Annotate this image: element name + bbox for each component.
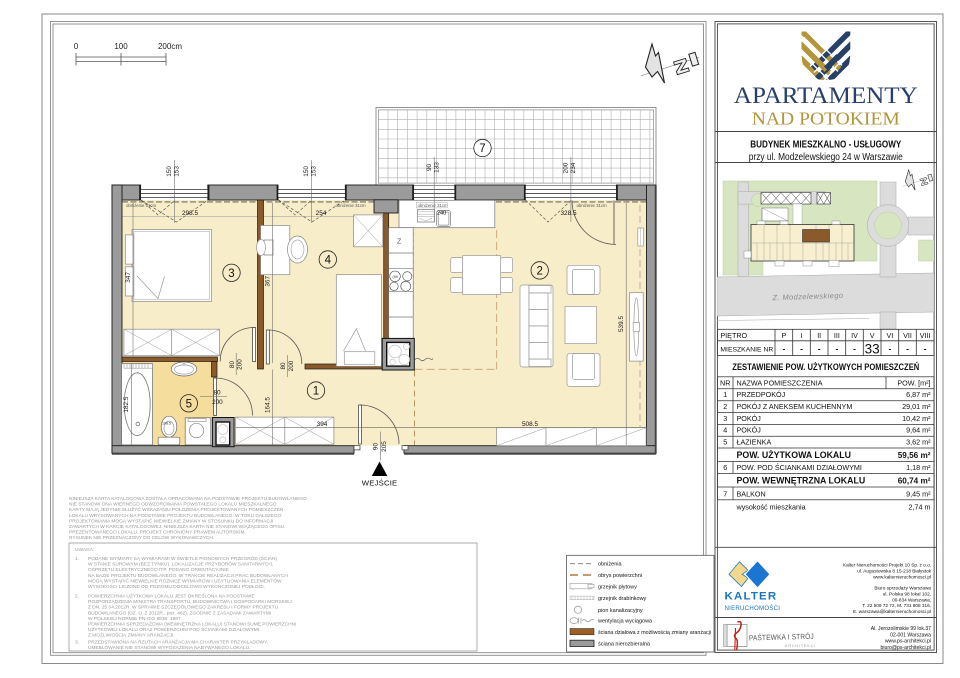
svg-text:KALTER: KALTER <box>725 591 778 603</box>
svg-text:BUDOWLANEGO (DZ. U. Z 2012R.,: BUDOWLANEGO (DZ. U. Z 2012R., poz. 462);… <box>88 610 271 616</box>
svg-text:2: 2 <box>723 402 727 411</box>
svg-text:2.: 2. <box>75 594 79 600</box>
svg-text:obniżenie 31cm: obniżenie 31cm <box>336 203 367 208</box>
svg-text:6: 6 <box>723 463 727 472</box>
svg-text:60,74 m²: 60,74 m² <box>898 477 931 486</box>
svg-text:153: 153 <box>174 166 181 177</box>
svg-text:(69: (69 <box>393 275 398 279</box>
svg-text:1.: 1. <box>75 556 79 562</box>
svg-text:NAD POTOKIEM: NAD POTOKIEM <box>752 109 900 129</box>
svg-text:APARTAMENTY: APARTAMENTY <box>734 83 918 109</box>
svg-text:POKÓJ Z ANEKSEM KUCHENNYM: POKÓJ Z ANEKSEM KUCHENNYM <box>737 402 853 411</box>
svg-text:100: 100 <box>114 42 128 51</box>
svg-text:NIERUCHOMOŚCI: NIERUCHOMOŚCI <box>725 604 781 612</box>
svg-text:P: P <box>782 331 787 340</box>
svg-text:7: 7 <box>723 490 727 499</box>
svg-text:164.5: 164.5 <box>264 397 271 413</box>
svg-text:ściana działowa z możliwością: ściana działowa z możliwością zmiany ara… <box>598 630 711 636</box>
svg-text:2,74 m: 2,74 m <box>909 503 931 512</box>
svg-text:III: III <box>834 331 840 340</box>
svg-text:www.kalternieruchomosci.pl: www.kalternieruchomosci.pl <box>873 574 931 579</box>
svg-text:PRZEDSTAWIONA NA RZUTACH ARANŻ: PRZEDSTAWIONA NA RZUTACH ARANŻACJA MA CH… <box>88 639 268 646</box>
svg-text:328.5: 328.5 <box>561 210 577 217</box>
svg-text:-: - <box>835 344 838 354</box>
svg-text:VI: VI <box>887 331 894 340</box>
svg-text:NR: NR <box>720 378 730 387</box>
svg-text:grzejnik drabinkowy: grzejnik drabinkowy <box>598 596 647 602</box>
svg-text:ul. Polska 98 lokal 102,: ul. Polska 98 lokal 102, <box>883 591 931 596</box>
svg-text:150: 150 <box>303 166 310 177</box>
svg-text:200: 200 <box>562 162 569 173</box>
svg-text:9,45 m²: 9,45 m² <box>906 490 931 499</box>
svg-text:1: 1 <box>723 390 727 399</box>
svg-text:POKÓJ: POKÓJ <box>737 414 762 423</box>
svg-text:E. warszawa@kalternieruchomosc: E. warszawa@kalternieruchomosci.pl <box>853 609 931 614</box>
svg-text:BUDYNEK MIESZKALNO - USŁUGOWY: BUDYNEK MIESZKALNO - USŁUGOWY <box>750 139 901 150</box>
svg-text:PIĘTRO: PIĘTRO <box>720 331 747 340</box>
svg-text:obrys powierzchni: obrys powierzchni <box>598 573 642 579</box>
svg-text:PAŚTEWKA I STRÓJ: PAŚTEWKA I STRÓJ <box>749 632 814 643</box>
svg-text:200: 200 <box>212 399 223 406</box>
svg-text:BALKON: BALKON <box>737 490 766 499</box>
svg-text:0: 0 <box>74 42 79 51</box>
svg-text:539.5: 539.5 <box>618 316 625 332</box>
svg-text:80: 80 <box>229 361 236 369</box>
svg-text:NINIEJSZA KARTA KATALOGOWA ZOS: NINIEJSZA KARTA KATALOGOWA ZOSTAŁA OPRAC… <box>69 496 307 502</box>
svg-text:3: 3 <box>228 268 234 280</box>
svg-text:RYSUNEK NIE PRZEZNACZONY DO CE: RYSUNEK NIE PRZEZNACZONY DO CELÓW WYKONA… <box>69 534 214 541</box>
svg-text:2: 2 <box>536 266 542 278</box>
svg-text:10,42 m²: 10,42 m² <box>902 414 931 423</box>
svg-text:254: 254 <box>316 210 327 217</box>
svg-text:Kalter Nieruchomości Projekt 1: Kalter Nieruchomości Projekt 10 Sp. z o.… <box>843 563 931 568</box>
svg-text:00-834 Warszawa,: 00-834 Warszawa, <box>892 597 931 602</box>
svg-text:POW. [m²]: POW. [m²] <box>897 378 930 387</box>
svg-text:KARTY MAJĄ JEDYNIE SŁUŻYĆ WSKA: KARTY MAJĄ JEDYNIE SŁUŻYĆ WSKAZANIU POŁO… <box>69 506 284 513</box>
svg-text:II: II <box>817 331 821 340</box>
svg-text:90: 90 <box>426 164 433 172</box>
svg-text:5: 5 <box>186 398 192 410</box>
svg-text:-: - <box>906 344 909 354</box>
svg-text:V: V <box>870 331 875 340</box>
svg-text:PROJEKTOWANIA MOGĄ WYSTĄPIĆ NI: PROJEKTOWANIA MOGĄ WYSTĄPIĆ NIEWIELKIE Z… <box>69 517 274 524</box>
svg-text:NAZWA POMIESZCZENIA: NAZWA POMIESZCZENIA <box>737 378 823 387</box>
svg-text:POKÓJ: POKÓJ <box>737 426 762 435</box>
svg-text:3.: 3. <box>75 640 79 646</box>
svg-text:7: 7 <box>479 143 485 155</box>
svg-text:-: - <box>818 344 821 354</box>
svg-text:www.ps-architekci.pl: www.ps-architekci.pl <box>885 639 931 645</box>
svg-text:9,64 m²: 9,64 m² <box>906 426 931 435</box>
svg-text:POW. UŻYTKOWA LOKALU: POW. UŻYTKOWA LOKALU <box>737 450 852 460</box>
svg-text:02-001 Warszawa: 02-001 Warszawa <box>890 632 931 638</box>
svg-text:OSPRZĘTU ELEKTRYCZNEGO ITP. PO: OSPRZĘTU ELEKTRYCZNEGO ITP. PODANO ORIEN… <box>88 567 229 573</box>
svg-text:4: 4 <box>723 426 727 435</box>
svg-text:-: - <box>924 344 927 354</box>
svg-text:wentylacja wyciągowa: wentylacja wyciągowa <box>597 619 653 625</box>
svg-text:ZAWARTYCH W KARCIE KATALOGOWEJ: ZAWARTYCH W KARCIE KATALOGOWEJ. NINIEJSZ… <box>69 523 285 530</box>
svg-text:133: 133 <box>433 162 440 173</box>
svg-text:obniżenie 31cm: obniżenie 31cm <box>418 203 449 208</box>
svg-text:153: 153 <box>311 166 318 177</box>
svg-text:4: 4 <box>325 255 332 267</box>
svg-text:pion kanalizacyjny: pion kanalizacyjny <box>598 608 643 614</box>
svg-text:298.5: 298.5 <box>182 210 198 217</box>
svg-text:obniżenie 31cm: obniżenie 31cm <box>577 203 608 208</box>
svg-text:Al. Jerozolimskie 99 lok.37: Al. Jerozolimskie 99 lok.37 <box>871 626 931 632</box>
svg-text:przy ul. Modzelewskiego 24 w W: przy ul. Modzelewskiego 24 w Warszawie <box>749 152 903 163</box>
svg-text:obniżenie 31cm: obniżenie 31cm <box>126 203 157 208</box>
svg-text:-: - <box>853 344 856 354</box>
svg-text:PRZEDPOKÓJ: PRZEDPOKÓJ <box>737 390 786 399</box>
svg-text:ŁAZIENKA: ŁAZIENKA <box>737 438 772 447</box>
svg-text:LOKALU WRYSOWANYCH NA PODSTAWI: LOKALU WRYSOWANYCH NA PODSTAWIE PROJEKTU… <box>69 513 282 519</box>
svg-text:394: 394 <box>317 421 328 428</box>
svg-text:3: 3 <box>723 414 727 423</box>
svg-text:234: 234 <box>570 162 577 173</box>
svg-text:198.5: 198.5 <box>162 422 171 426</box>
svg-text:WEJŚCIE: WEJŚCIE <box>362 479 398 488</box>
svg-text:biuro@ps-architekci.pl: biuro@ps-architekci.pl <box>881 645 931 651</box>
svg-text:W STANIE SUROWYM (BEZ TYNKU).: W STANIE SUROWYM (BEZ TYNKU). LOKALIZACJ… <box>88 561 273 568</box>
svg-text:347: 347 <box>125 272 132 283</box>
svg-text:UMEBLOWANIE NIE STANOWI WYPOSA: UMEBLOWANIE NIE STANOWI WYPOSAŻENIA NABY… <box>88 644 250 651</box>
svg-text:PREZENTOWANEGO LOKALU. PROJEKT: PREZENTOWANEGO LOKALU. PROJEKT CHRONIONY… <box>69 530 246 536</box>
svg-text:182.5: 182.5 <box>123 396 130 412</box>
svg-text:-: - <box>782 344 785 354</box>
svg-text:POW. POD ŚCIANKAMI DZIAŁOWY: POW. POD ŚCIANKAMI DZIAŁOWYMI <box>737 463 862 472</box>
svg-text:grzejnik płytowy: grzejnik płytowy <box>598 585 637 591</box>
svg-text:-: - <box>800 344 803 354</box>
svg-text:6,87 m²: 6,87 m² <box>906 390 931 399</box>
svg-text:obniżenia: obniżenia <box>598 562 622 568</box>
svg-text:508.5: 508.5 <box>522 421 538 428</box>
svg-text:POW. WEWNĘTRZNA LOKALU: POW. WEWNĘTRZNA LOKALU <box>737 476 866 486</box>
svg-text:5: 5 <box>723 438 727 447</box>
svg-text:59,56 m²: 59,56 m² <box>898 451 931 460</box>
svg-text:205: 205 <box>381 441 388 452</box>
svg-text:ściana nierozbieralna: ściana nierozbieralna <box>598 642 651 648</box>
svg-text:I: I <box>801 331 803 340</box>
svg-text:1: 1 <box>313 386 319 398</box>
svg-text:80: 80 <box>213 390 221 397</box>
svg-text:VIII: VIII <box>920 331 931 340</box>
svg-text:29,01 m²: 29,01 m² <box>902 402 931 411</box>
svg-text:MIESZKANIE NR: MIESZKANIE NR <box>720 346 773 353</box>
svg-text:Biuro sprzedaży Warszawa: Biuro sprzedaży Warszawa <box>874 586 931 591</box>
svg-text:150: 150 <box>166 166 173 177</box>
svg-text:POWIERZCHNIA SPRZEDAŻOWA (WEWN: POWIERZCHNIA SPRZEDAŻOWA (WEWNĘTRZNA LOK… <box>88 621 296 628</box>
svg-text:NA BAZIE PROJEKTU BUDOWLANEGO.: NA BAZIE PROJEKTU BUDOWLANEGO. W TRAKCIE… <box>88 573 288 579</box>
svg-text:-: - <box>888 344 891 354</box>
svg-text:ROZPORZĄDZENIA MINISTRA TRANSP: ROZPORZĄDZENIA MINISTRA TRANSPORTU, BUDO… <box>88 599 292 605</box>
svg-text:200cm: 200cm <box>158 42 182 51</box>
svg-text:VII: VII <box>903 331 912 340</box>
svg-text:IV: IV <box>851 331 858 340</box>
svg-text:33: 33 <box>865 342 880 357</box>
svg-text:MOGĄ WYSTĄPIĆ NIEWIELKIE RÓŻNI: MOGĄ WYSTĄPIĆ NIEWIELKIE RÓŻNICE WYMIARÓ… <box>88 577 283 584</box>
svg-text:3,62 m²: 3,62 m² <box>906 438 931 447</box>
svg-text:ZESTAWIENIE POW. UŻYTKOWYCH PO: ZESTAWIENIE POW. UŻYTKOWYCH POMIESZCZEŃ <box>732 362 919 372</box>
svg-text:T. 22 509 72 72, M. 731 808 31: T. 22 509 72 72, M. 731 808 316, <box>862 603 931 608</box>
svg-text:ul. Augustowska 8 15-218 Biały: ul. Augustowska 8 15-218 Białystok <box>857 568 931 573</box>
svg-text:240: 240 <box>437 210 446 216</box>
svg-text:Z: Z <box>397 239 402 246</box>
svg-text:Z DN. 25.04.2012R. W SPRAWIE S: Z DN. 25.04.2012R. W SPRAWIE SZCZEGÓŁOWE… <box>88 604 279 611</box>
svg-text:80: 80 <box>280 362 287 370</box>
svg-text:1,18 m²: 1,18 m² <box>906 463 931 472</box>
svg-text:200: 200 <box>236 359 243 370</box>
svg-text:90: 90 <box>373 443 380 451</box>
svg-text:W POLSKIEJ NORMIE PN-ISO 9836:: W POLSKIEJ NORMIE PN-ISO 9836: 1997. <box>88 616 182 622</box>
svg-text:ARCHITEKCI: ARCHITEKCI <box>785 644 816 648</box>
svg-text:200: 200 <box>288 360 295 371</box>
svg-text:wysokość mieszkania: wysokość mieszkania <box>736 503 806 512</box>
svg-text:367: 367 <box>264 276 271 287</box>
svg-text:UWAGA:: UWAGA: <box>75 547 94 553</box>
svg-text:NIE STANOWI ONA WIERNEGO ODWZO: NIE STANOWI ONA WIERNEGO ODWZOROWANIA PO… <box>69 502 277 508</box>
